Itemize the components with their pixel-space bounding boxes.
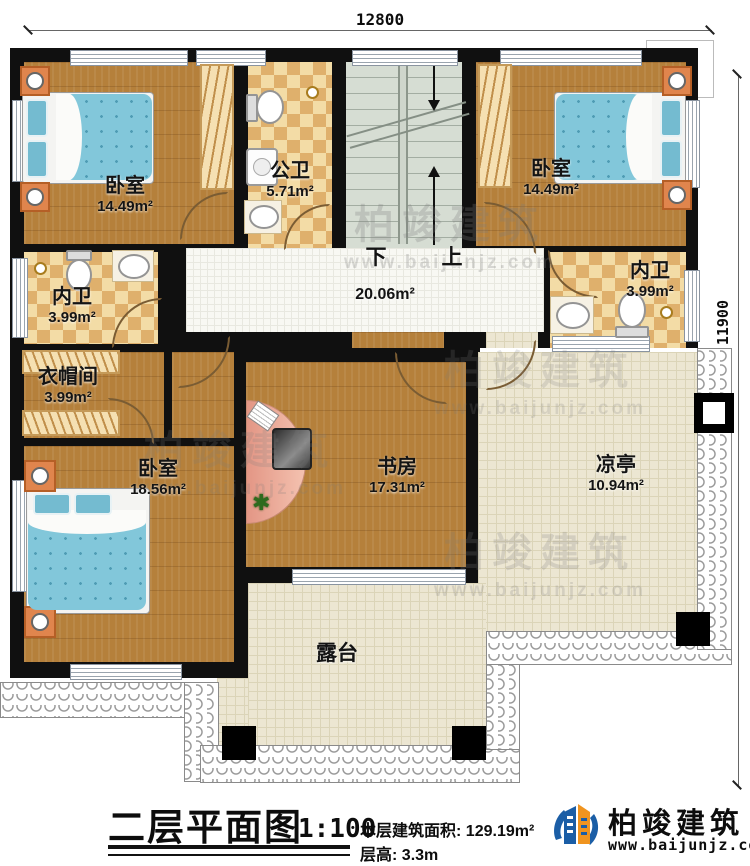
room-label-cloakroom: 衣帽间 3.99m² xyxy=(18,366,118,406)
shower-knob-icon xyxy=(306,86,319,99)
brand-logo-icon xyxy=(550,796,604,856)
shower-knob-icon xyxy=(660,306,673,319)
stairs-up-label: 上 xyxy=(432,246,472,270)
floor-height-value: 3.3m xyxy=(402,847,438,864)
roof-rim xyxy=(0,682,186,718)
window xyxy=(292,569,466,585)
brand-url: www.baijunjz.com xyxy=(608,836,750,854)
window xyxy=(352,50,458,66)
room-label-terrace: 露台 xyxy=(297,642,377,666)
title-underline xyxy=(108,854,350,856)
terrace-column xyxy=(222,726,256,760)
pavilion-railing xyxy=(552,336,650,352)
floor-height-label: 层高: xyxy=(360,847,397,864)
pillow xyxy=(33,493,71,515)
window xyxy=(684,100,700,188)
nightstand xyxy=(662,66,692,96)
room-label-hallway: 20.06m² xyxy=(325,286,445,304)
room-label-bath-right: 内卫 3.99m² xyxy=(600,260,700,300)
nightstand xyxy=(24,606,56,638)
room-label-public-bath: 公卫 5.71m² xyxy=(248,160,332,200)
bed-sheet xyxy=(56,94,82,180)
bed-sheet xyxy=(626,94,652,180)
stairs-down-label: 下 xyxy=(356,246,396,270)
floor-height-line: 层高: 3.3m xyxy=(360,841,438,865)
nightstand xyxy=(662,180,692,210)
title-underline xyxy=(108,845,350,849)
window xyxy=(70,50,188,66)
right-dimension-line xyxy=(738,75,739,787)
pillow xyxy=(26,99,48,137)
study-door-opening xyxy=(352,332,444,348)
floor-area-label: 本层建筑面积: xyxy=(360,823,461,840)
stairs-down-arrow-icon xyxy=(428,100,440,117)
stairs-down-arrow-icon xyxy=(433,66,435,100)
terrace-column xyxy=(676,612,710,646)
stairs-up-arrow-icon xyxy=(428,160,440,177)
room-label-bedroom-bl: 卧室 18.56m² xyxy=(103,458,213,498)
top-dimension-label: 12800 xyxy=(340,10,420,29)
window xyxy=(500,50,642,66)
floor-plan-canvas: 12800 11900 xyxy=(0,0,750,866)
clothes-rack xyxy=(22,410,120,436)
pillow xyxy=(660,140,682,178)
nightstand xyxy=(20,182,50,212)
sink-icon xyxy=(249,205,279,229)
top-dimension-line xyxy=(28,30,712,31)
stair-rail xyxy=(398,66,408,244)
floor-area-value: 129.19m² xyxy=(466,823,535,840)
room-label-bedroom-tr: 卧室 14.49m² xyxy=(496,158,606,198)
nightstand xyxy=(20,66,50,96)
right-dimension-label: 11900 xyxy=(714,300,732,345)
dimension-tick xyxy=(732,69,742,79)
terrace-column xyxy=(452,726,486,760)
plant-icon: ✱ xyxy=(252,490,270,516)
computer-icon xyxy=(272,428,312,470)
wardrobe xyxy=(200,64,234,190)
window xyxy=(70,664,182,680)
pillow xyxy=(660,99,682,137)
room-label-bedroom-tl: 卧室 14.49m² xyxy=(70,175,180,215)
room-label-bath-left: 内卫 3.99m² xyxy=(27,286,117,326)
nightstand xyxy=(24,460,56,492)
toilet-icon xyxy=(615,326,649,338)
chimney xyxy=(694,393,734,433)
stairs-up-arrow-icon xyxy=(433,177,435,245)
toilet-icon xyxy=(256,90,284,124)
dimension-tick xyxy=(732,780,742,790)
pillow xyxy=(26,140,48,178)
shower-knob-icon xyxy=(34,262,47,275)
sink-icon xyxy=(556,302,590,329)
sink-icon xyxy=(118,254,150,279)
window xyxy=(12,258,28,338)
room-label-pavilion: 凉亭 10.94m² xyxy=(561,454,671,494)
floor-area-line: 本层建筑面积: 129.19m² xyxy=(360,817,534,841)
room-label-study: 书房 17.31m² xyxy=(342,456,452,496)
page-title: 二层平面图 xyxy=(108,797,303,851)
